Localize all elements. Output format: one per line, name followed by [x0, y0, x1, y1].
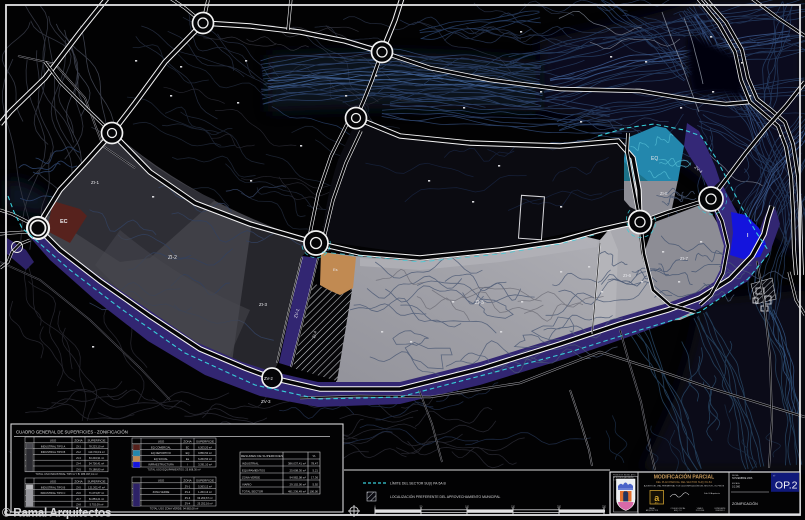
svg-text:100: 100 — [465, 506, 470, 509]
svg-text:6.263,50 m²: 6.263,50 m² — [198, 457, 212, 461]
svg-text:EQ: EQ — [651, 156, 658, 162]
svg-text:EQ DEPORTIVO: EQ DEPORTIVO — [151, 451, 171, 455]
svg-text:5,21: 5,21 — [313, 469, 319, 473]
svg-text:VIARIO: VIARIO — [242, 483, 252, 487]
svg-text:RESUMEN DE SUPERFICIES: RESUMEN DE SUPERFICIES — [241, 454, 283, 458]
svg-text:ZI-5: ZI-5 — [76, 468, 81, 472]
svg-text:25.252,16 m²: 25.252,16 m² — [197, 502, 212, 506]
svg-text:29.102,00 m²: 29.102,00 m² — [290, 483, 307, 487]
svg-text:78.223,10 m²: 78.223,10 m² — [89, 444, 104, 448]
svg-text:ZONA: ZONA — [74, 480, 82, 484]
svg-text:100,00: 100,00 — [309, 490, 318, 494]
svg-text:Es: Es — [333, 267, 338, 272]
svg-text:INDUSTRIAL TIPO C: INDUSTRIAL TIPO C — [41, 491, 66, 495]
svg-text:TOTAL USO ZONA VERDE: 94.982,0: TOTAL USO ZONA VERDE: 94.982,08 m² — [150, 506, 199, 510]
svg-text:ZONA VERDE: ZONA VERDE — [242, 476, 260, 480]
svg-text:2006/1182-2: 2006/1182-2 — [715, 510, 724, 512]
svg-text:ZV-2: ZV-2 — [264, 376, 274, 381]
svg-text:EQ COMERCIAL: EQ COMERCIAL — [151, 445, 171, 449]
svg-text:200: 200 — [557, 506, 562, 509]
svg-text:Nº: Nº — [773, 475, 775, 478]
svg-text:%: % — [313, 454, 316, 458]
svg-text:© Ramal Arquitectos: © Ramal Arquitectos — [2, 506, 112, 520]
svg-text:ZONA: ZONA — [183, 440, 191, 444]
svg-text:AJUSTE DEL VIAL PERIMETRAL Y D: AJUSTE DEL VIAL PERIMETRAL Y DE LA ZONIF… — [644, 484, 725, 487]
svg-text:78,47: 78,47 — [311, 462, 318, 466]
svg-text:ZI-2: ZI-2 — [76, 450, 81, 454]
svg-text:TOTAL USO INDUSTRIAL TIPO A Y: TOTAL USO INDUSTRIAL TIPO A Y B: 386.037… — [35, 472, 97, 476]
svg-text:ZI-6: ZI-6 — [76, 491, 81, 495]
svg-text:5,92: 5,92 — [313, 483, 319, 487]
svg-text:ZI-5: ZI-5 — [76, 485, 81, 489]
svg-text:6.203,20 m²: 6.203,20 m² — [198, 445, 212, 449]
svg-text:121.202,47 m²: 121.202,47 m² — [88, 485, 105, 489]
svg-text:INDUSTRIAL TIPO A: INDUSTRIAL TIPO A — [41, 444, 66, 448]
svg-text:NOVIEMBRE 2006: NOVIEMBRE 2006 — [732, 477, 753, 480]
svg-text:25.608,30 m²: 25.608,30 m² — [290, 469, 307, 473]
svg-text:1.263,13 m²: 1.263,13 m² — [198, 490, 212, 494]
svg-text:EC: EC — [60, 219, 68, 225]
svg-text:CUADRO GENERAL DE SUPERFICIES: CUADRO GENERAL DE SUPERFICIES - ZONIFICA… — [16, 430, 128, 435]
svg-text:USO: USO — [50, 439, 57, 443]
svg-text:ZI-2: ZI-2 — [168, 255, 177, 261]
svg-text:ZV-3: ZV-3 — [261, 399, 271, 404]
svg-text:ZV-2: ZV-2 — [185, 490, 191, 494]
svg-text:EQUIPAMIENTOS: EQUIPAMIENTOS — [242, 469, 265, 473]
svg-text:SUPERFICIE: SUPERFICIE — [196, 440, 214, 444]
svg-text:5.263,12 m²: 5.263,12 m² — [198, 484, 212, 488]
svg-text:79.188,80 m²: 79.188,80 m² — [89, 468, 104, 472]
svg-text:SUPERFICIE: SUPERFICIE — [87, 439, 105, 443]
svg-text:ZV-4: ZV-4 — [185, 502, 191, 506]
svg-text:TOTAL SECTOR: TOTAL SECTOR — [242, 490, 263, 494]
svg-text:LOCALIZACIÓN PREFERENTE DEL AP: LOCALIZACIÓN PREFERENTE DEL APROVECHAMIE… — [390, 494, 500, 499]
svg-text:Fdo. El Arquitecto: Fdo. El Arquitecto — [704, 492, 721, 495]
svg-text:ZV-3: ZV-3 — [185, 496, 191, 500]
svg-text:INDUSTRIAL TIPO B: INDUSTRIAL TIPO B — [41, 485, 66, 489]
svg-text:ZONA: ZONA — [183, 479, 191, 483]
svg-text:INDUSTRIAL TIPO B: INDUSTRIAL TIPO B — [41, 450, 66, 454]
svg-text:94.982,08 m²: 94.982,08 m² — [290, 476, 307, 480]
svg-text:ZI-3: ZI-3 — [259, 302, 267, 307]
svg-text:54.700,41 m²: 54.700,41 m² — [89, 462, 104, 466]
svg-text:ZI-6: ZI-6 — [623, 273, 631, 278]
svg-text:ZV-1: ZV-1 — [185, 484, 191, 488]
svg-text:DEL PLAN PARCIAL DEL SECTOR SU: DEL PLAN PARCIAL DEL SECTOR SU(I) PA-5A — [656, 480, 712, 484]
svg-text:INDUSTRIAL: INDUSTRIAL — [242, 462, 259, 466]
svg-text:110.720,19 m²: 110.720,19 m² — [88, 450, 105, 454]
svg-text:EQ SOCIAL: EQ SOCIAL — [154, 457, 169, 461]
svg-text:63.203,67 m²: 63.203,67 m² — [197, 496, 212, 500]
svg-text:ZI-1: ZI-1 — [91, 180, 99, 185]
svg-text:17,36: 17,36 — [311, 476, 318, 480]
svg-text:ZONIFICACIÓN: ZONIFICACIÓN — [732, 501, 758, 506]
svg-text:ZI-5: ZI-5 — [475, 300, 484, 306]
svg-text:ARQUITECTOS: ARQUITECTOS — [646, 509, 659, 512]
svg-text:491.236,49 m²: 491.236,49 m² — [288, 490, 306, 494]
svg-text:MODIFICACIÓN PARCIAL: MODIFICACIÓN PARCIAL — [654, 473, 714, 481]
svg-text:9.850,50 m²: 9.850,50 m² — [198, 451, 212, 455]
svg-text:TOTAL USO EQUIPAMIENTOS: 25.60: TOTAL USO EQUIPAMIENTOS: 25.608,30 m² — [147, 467, 200, 471]
svg-text:ZI-8: ZI-8 — [660, 191, 668, 196]
svg-text:386.037,41 m²: 386.037,41 m² — [288, 462, 306, 466]
svg-text:63.204,91 m²: 63.204,91 m² — [89, 456, 104, 460]
svg-text:USO: USO — [50, 480, 57, 484]
svg-text:ZI-1: ZI-1 — [76, 444, 81, 448]
svg-text:USO: USO — [158, 440, 165, 444]
svg-text:ZONA: ZONA — [74, 439, 82, 443]
svg-text:ARQ. C.V.: ARQ. C.V. — [674, 509, 682, 512]
svg-text:61.853,21 m²: 61.853,21 m² — [89, 497, 104, 501]
svg-text:SUPERFICIE: SUPERFICIE — [87, 480, 105, 484]
svg-text:ZI-7: ZI-7 — [76, 497, 81, 501]
svg-text:SUPERFICIE: SUPERFICIE — [196, 479, 214, 483]
svg-text:ZI-3: ZI-3 — [76, 456, 81, 460]
svg-text:ZI-7: ZI-7 — [680, 256, 688, 261]
svg-text:USO: USO — [158, 479, 165, 483]
svg-text:OP.2: OP.2 — [775, 480, 798, 492]
svg-text:250: 250 — [602, 506, 607, 509]
svg-text:ZONA VERDE: ZONA VERDE — [153, 490, 170, 494]
svg-text:1/2.000: 1/2.000 — [732, 486, 741, 489]
svg-text:ZI-4: ZI-4 — [76, 462, 81, 466]
svg-text:22-11-2006: 22-11-2006 — [696, 510, 705, 512]
svg-text:EC: EC — [186, 445, 190, 449]
svg-text:150: 150 — [511, 506, 516, 509]
svg-text:EQ: EQ — [186, 451, 190, 455]
svg-text:71.073,87 m²: 71.073,87 m² — [89, 491, 104, 495]
svg-text:INFRAESTRUCTURA: INFRAESTRUCTURA — [148, 463, 174, 467]
svg-text:3.291,10 m²: 3.291,10 m² — [198, 463, 212, 467]
svg-text:LÍMITE DEL SECTOR SU(I) PA-5A: LÍMITE DEL SECTOR SU(I) PA-5A B — [390, 482, 446, 486]
